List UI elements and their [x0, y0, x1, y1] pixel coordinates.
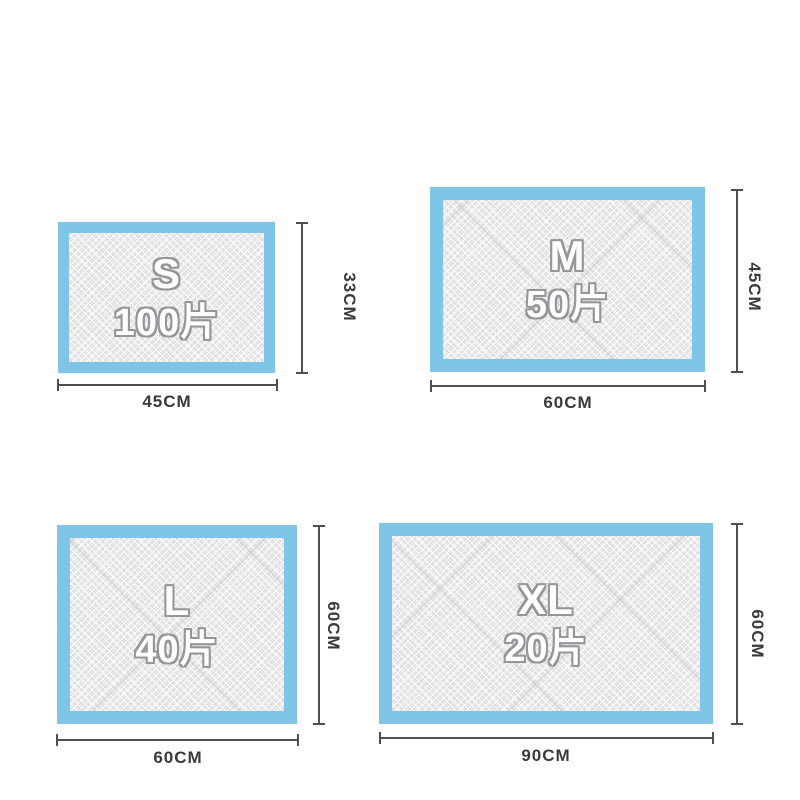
- pad-xl-width-dimension-line: [379, 737, 714, 739]
- pad-xl-height-label: 60CM: [747, 584, 767, 684]
- pad-xl-rect: XL 20片: [379, 523, 713, 724]
- pad-xl-text-block: XL 20片: [504, 579, 587, 668]
- size-chart-canvas: S 100片 33CM 45CM M 50片 45CM 60CM L 40片: [0, 0, 800, 800]
- pad-xl-group: XL 20片 60CM 90CM: [0, 0, 800, 800]
- pad-xl-count-label: 20片: [504, 630, 587, 668]
- pad-xl-width-label: 90CM: [496, 746, 596, 766]
- pad-xl-size-label: XL: [518, 579, 574, 621]
- pad-xl-height-dimension-line: [736, 523, 738, 725]
